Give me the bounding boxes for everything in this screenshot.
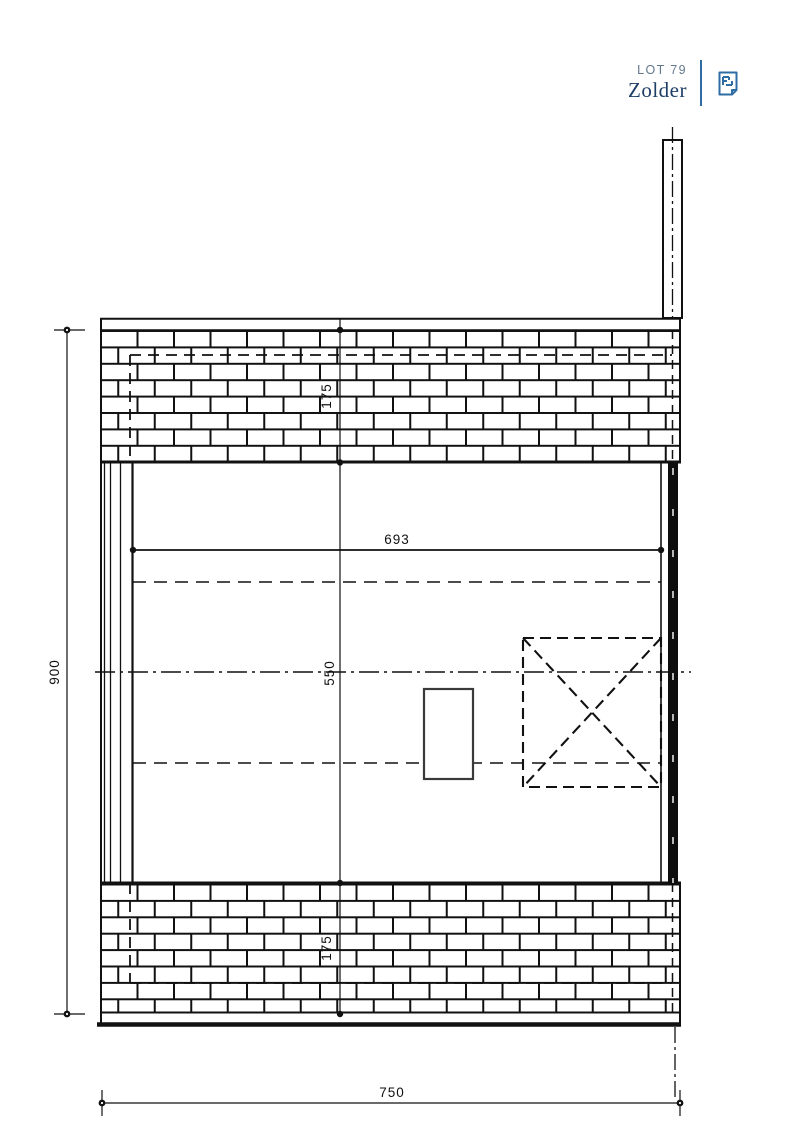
dimension-overall-width: 750: [99, 1085, 684, 1116]
interior-lines: [95, 582, 691, 763]
duct-rectangle: [424, 689, 473, 779]
floor-plan-page: LOT 79 Zolder: [0, 0, 800, 1132]
dim-750-label: 750: [379, 1085, 405, 1100]
dim-175-top-label: 175: [319, 383, 334, 409]
chimney: [663, 127, 682, 318]
dimension-overall-height: 900: [47, 327, 85, 1018]
dim-550-label: 550: [322, 660, 337, 686]
top-wall: [100, 319, 681, 462]
dim-900-label: 900: [47, 659, 62, 685]
roof-window-dashed-box: [523, 638, 661, 787]
dim-175-bottom-label: 175: [319, 935, 334, 961]
floor-plan-drawing: 693 175 550 175 900: [0, 0, 800, 1132]
dim-693-label: 693: [384, 532, 410, 547]
bottom-wall: [97, 883, 681, 1025]
dimension-inner-width: 693: [130, 532, 664, 553]
